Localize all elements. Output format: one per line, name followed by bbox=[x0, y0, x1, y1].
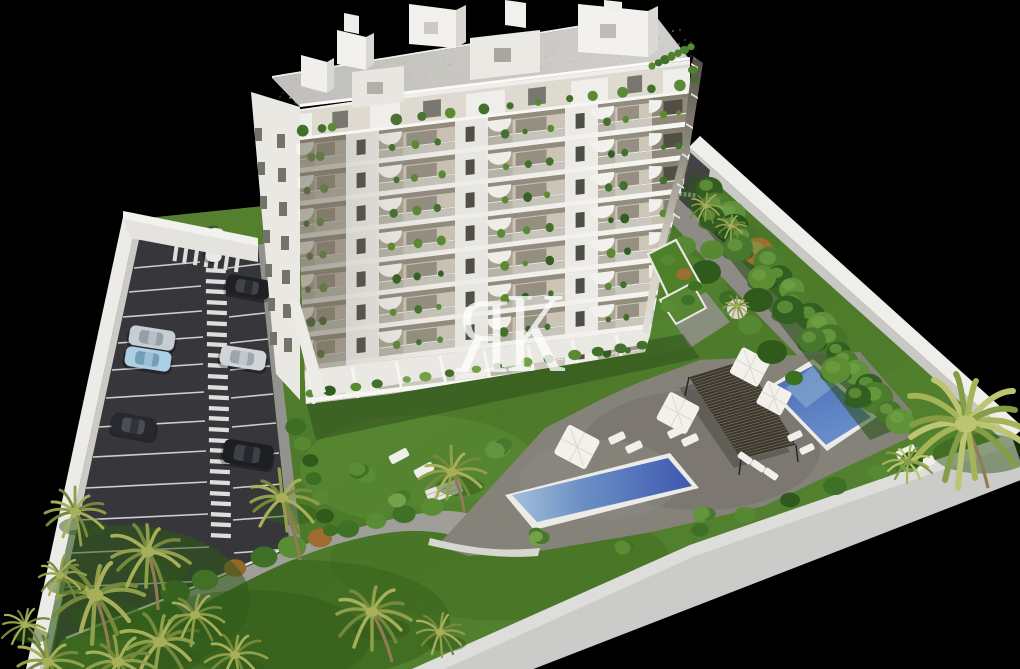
svg-text:Я: Я bbox=[455, 277, 510, 396]
svg-text:К: К bbox=[506, 270, 565, 397]
